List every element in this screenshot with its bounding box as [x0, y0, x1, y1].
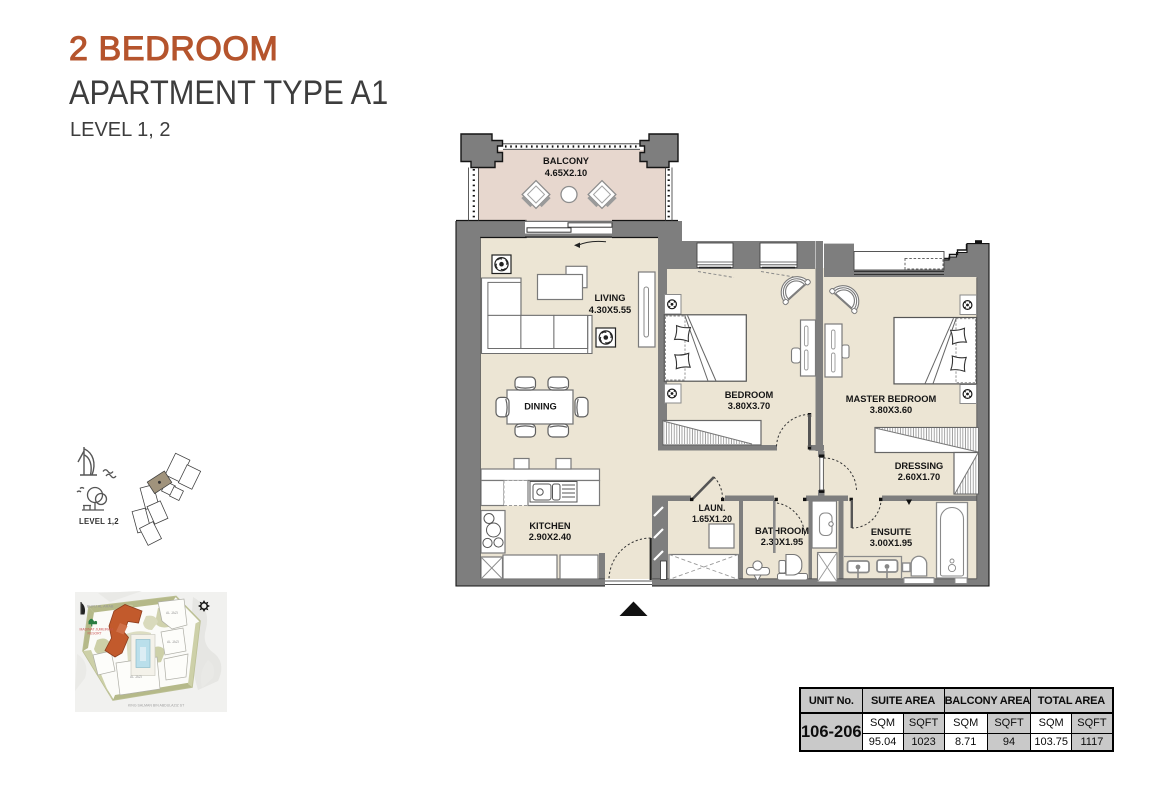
svg-text:LIVING: LIVING [595, 293, 626, 303]
svg-text:KITCHEN: KITCHEN [529, 521, 571, 531]
svg-text:2.30X1.95: 2.30X1.95 [761, 537, 803, 547]
svg-text:4.65X2.10: 4.65X2.10 [545, 168, 587, 178]
svg-text:1.65X1.20: 1.65X1.20 [692, 514, 732, 524]
svg-text:RESORT: RESORT [88, 632, 102, 636]
svg-text:3.80X3.60: 3.80X3.60 [870, 405, 912, 415]
svg-text:BATHROOM: BATHROOM [755, 526, 809, 536]
svg-text:AL JAZI: AL JAZI [167, 640, 179, 644]
svg-text:2.60X1.70: 2.60X1.70 [898, 472, 940, 482]
svg-text:3.80X3.70: 3.80X3.70 [728, 401, 770, 411]
svg-text:AL JAZI: AL JAZI [130, 675, 142, 679]
svg-text:DINING: DINING [524, 402, 557, 412]
svg-text:2.90X2.40: 2.90X2.40 [529, 532, 571, 542]
svg-text:4.30X5.55: 4.30X5.55 [589, 305, 631, 315]
svg-text:MASTER BEDROOM: MASTER BEDROOM [846, 394, 937, 404]
svg-text:AL JAZI: AL JAZI [166, 611, 178, 615]
svg-text:DRESSING: DRESSING [895, 461, 944, 471]
svg-text:3.00X1.95: 3.00X1.95 [870, 538, 912, 548]
svg-text:LEVEL 1,2: LEVEL 1,2 [79, 517, 119, 526]
svg-text:BALCONY: BALCONY [543, 156, 590, 166]
svg-text:BURJ AL ARAB: BURJ AL ARAB [87, 605, 114, 609]
svg-text:ENSUITE: ENSUITE [871, 527, 911, 537]
svg-text:KING SALMAN BIN ABDULAZIZ ST: KING SALMAN BIN ABDULAZIZ ST [128, 704, 185, 708]
svg-text:LAUN.: LAUN. [699, 503, 726, 513]
svg-text:BEDROOM: BEDROOM [725, 390, 774, 400]
